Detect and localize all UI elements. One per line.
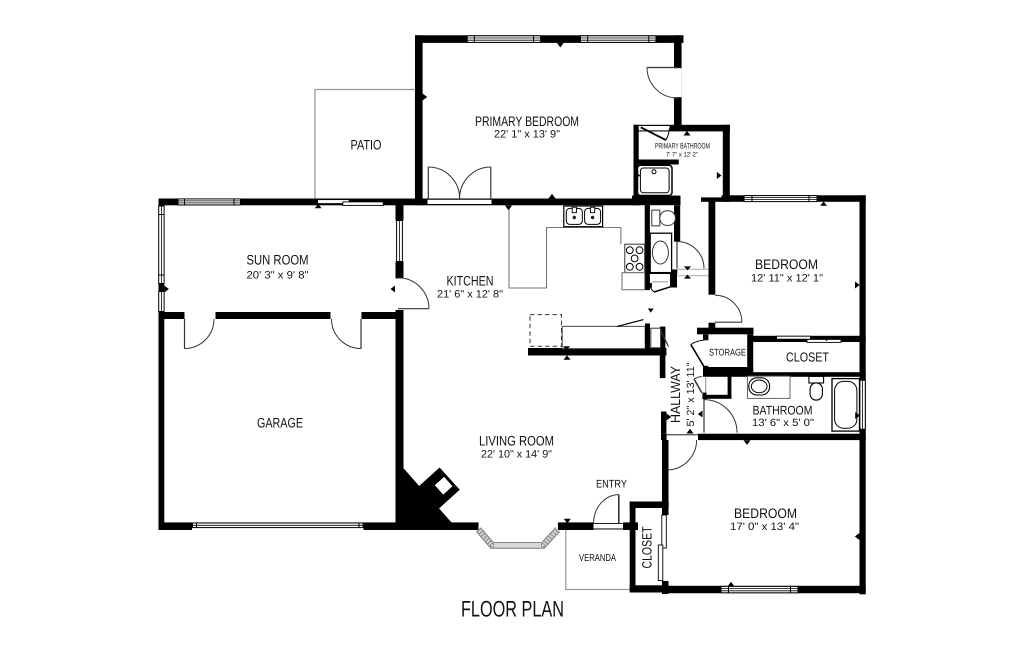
svg-text:PATIO: PATIO bbox=[351, 138, 382, 153]
svg-text:PRIMARY BATHROOM: PRIMARY BATHROOM bbox=[655, 142, 710, 151]
svg-text:BEDROOM: BEDROOM bbox=[734, 506, 797, 521]
svg-text:5' 2" x 13' 11": 5' 2" x 13' 11" bbox=[685, 362, 697, 426]
svg-text:12' 11" x 12' 1": 12' 11" x 12' 1" bbox=[751, 273, 823, 285]
svg-text:BEDROOM: BEDROOM bbox=[755, 257, 818, 272]
svg-text:VERANDA: VERANDA bbox=[579, 553, 616, 564]
svg-text:HALLWAY: HALLWAY bbox=[668, 366, 683, 423]
svg-text:17' 0" x 13' 4": 17' 0" x 13' 4" bbox=[730, 521, 799, 533]
svg-text:21' 6" x 12' 8": 21' 6" x 12' 8" bbox=[437, 289, 503, 301]
svg-text:GARAGE: GARAGE bbox=[257, 416, 303, 431]
svg-text:7' 7" x 12' 2": 7' 7" x 12' 2" bbox=[666, 152, 698, 159]
svg-text:LIVING ROOM: LIVING ROOM bbox=[479, 434, 554, 449]
svg-text:KITCHEN: KITCHEN bbox=[447, 274, 494, 289]
svg-text:13' 6" x 5' 0": 13' 6" x 5' 0" bbox=[752, 417, 814, 429]
svg-text:ENTRY: ENTRY bbox=[596, 479, 628, 491]
svg-text:STORAGE: STORAGE bbox=[709, 348, 746, 359]
svg-text:SUN ROOM: SUN ROOM bbox=[247, 253, 309, 268]
svg-text:22' 1" x 13' 9": 22' 1" x 13' 9" bbox=[494, 129, 560, 141]
svg-text:22' 10" x 14' 9": 22' 10" x 14' 9" bbox=[481, 449, 552, 461]
svg-text:CLOSET: CLOSET bbox=[786, 350, 829, 365]
svg-text:BATHROOM: BATHROOM bbox=[753, 404, 813, 418]
svg-text:CLOSET: CLOSET bbox=[640, 527, 655, 569]
svg-text:FLOOR PLAN: FLOOR PLAN bbox=[461, 597, 564, 622]
svg-text:PRIMARY BEDROOM: PRIMARY BEDROOM bbox=[475, 114, 579, 129]
svg-text:20' 3" x 9' 8": 20' 3" x 9' 8" bbox=[247, 270, 309, 282]
